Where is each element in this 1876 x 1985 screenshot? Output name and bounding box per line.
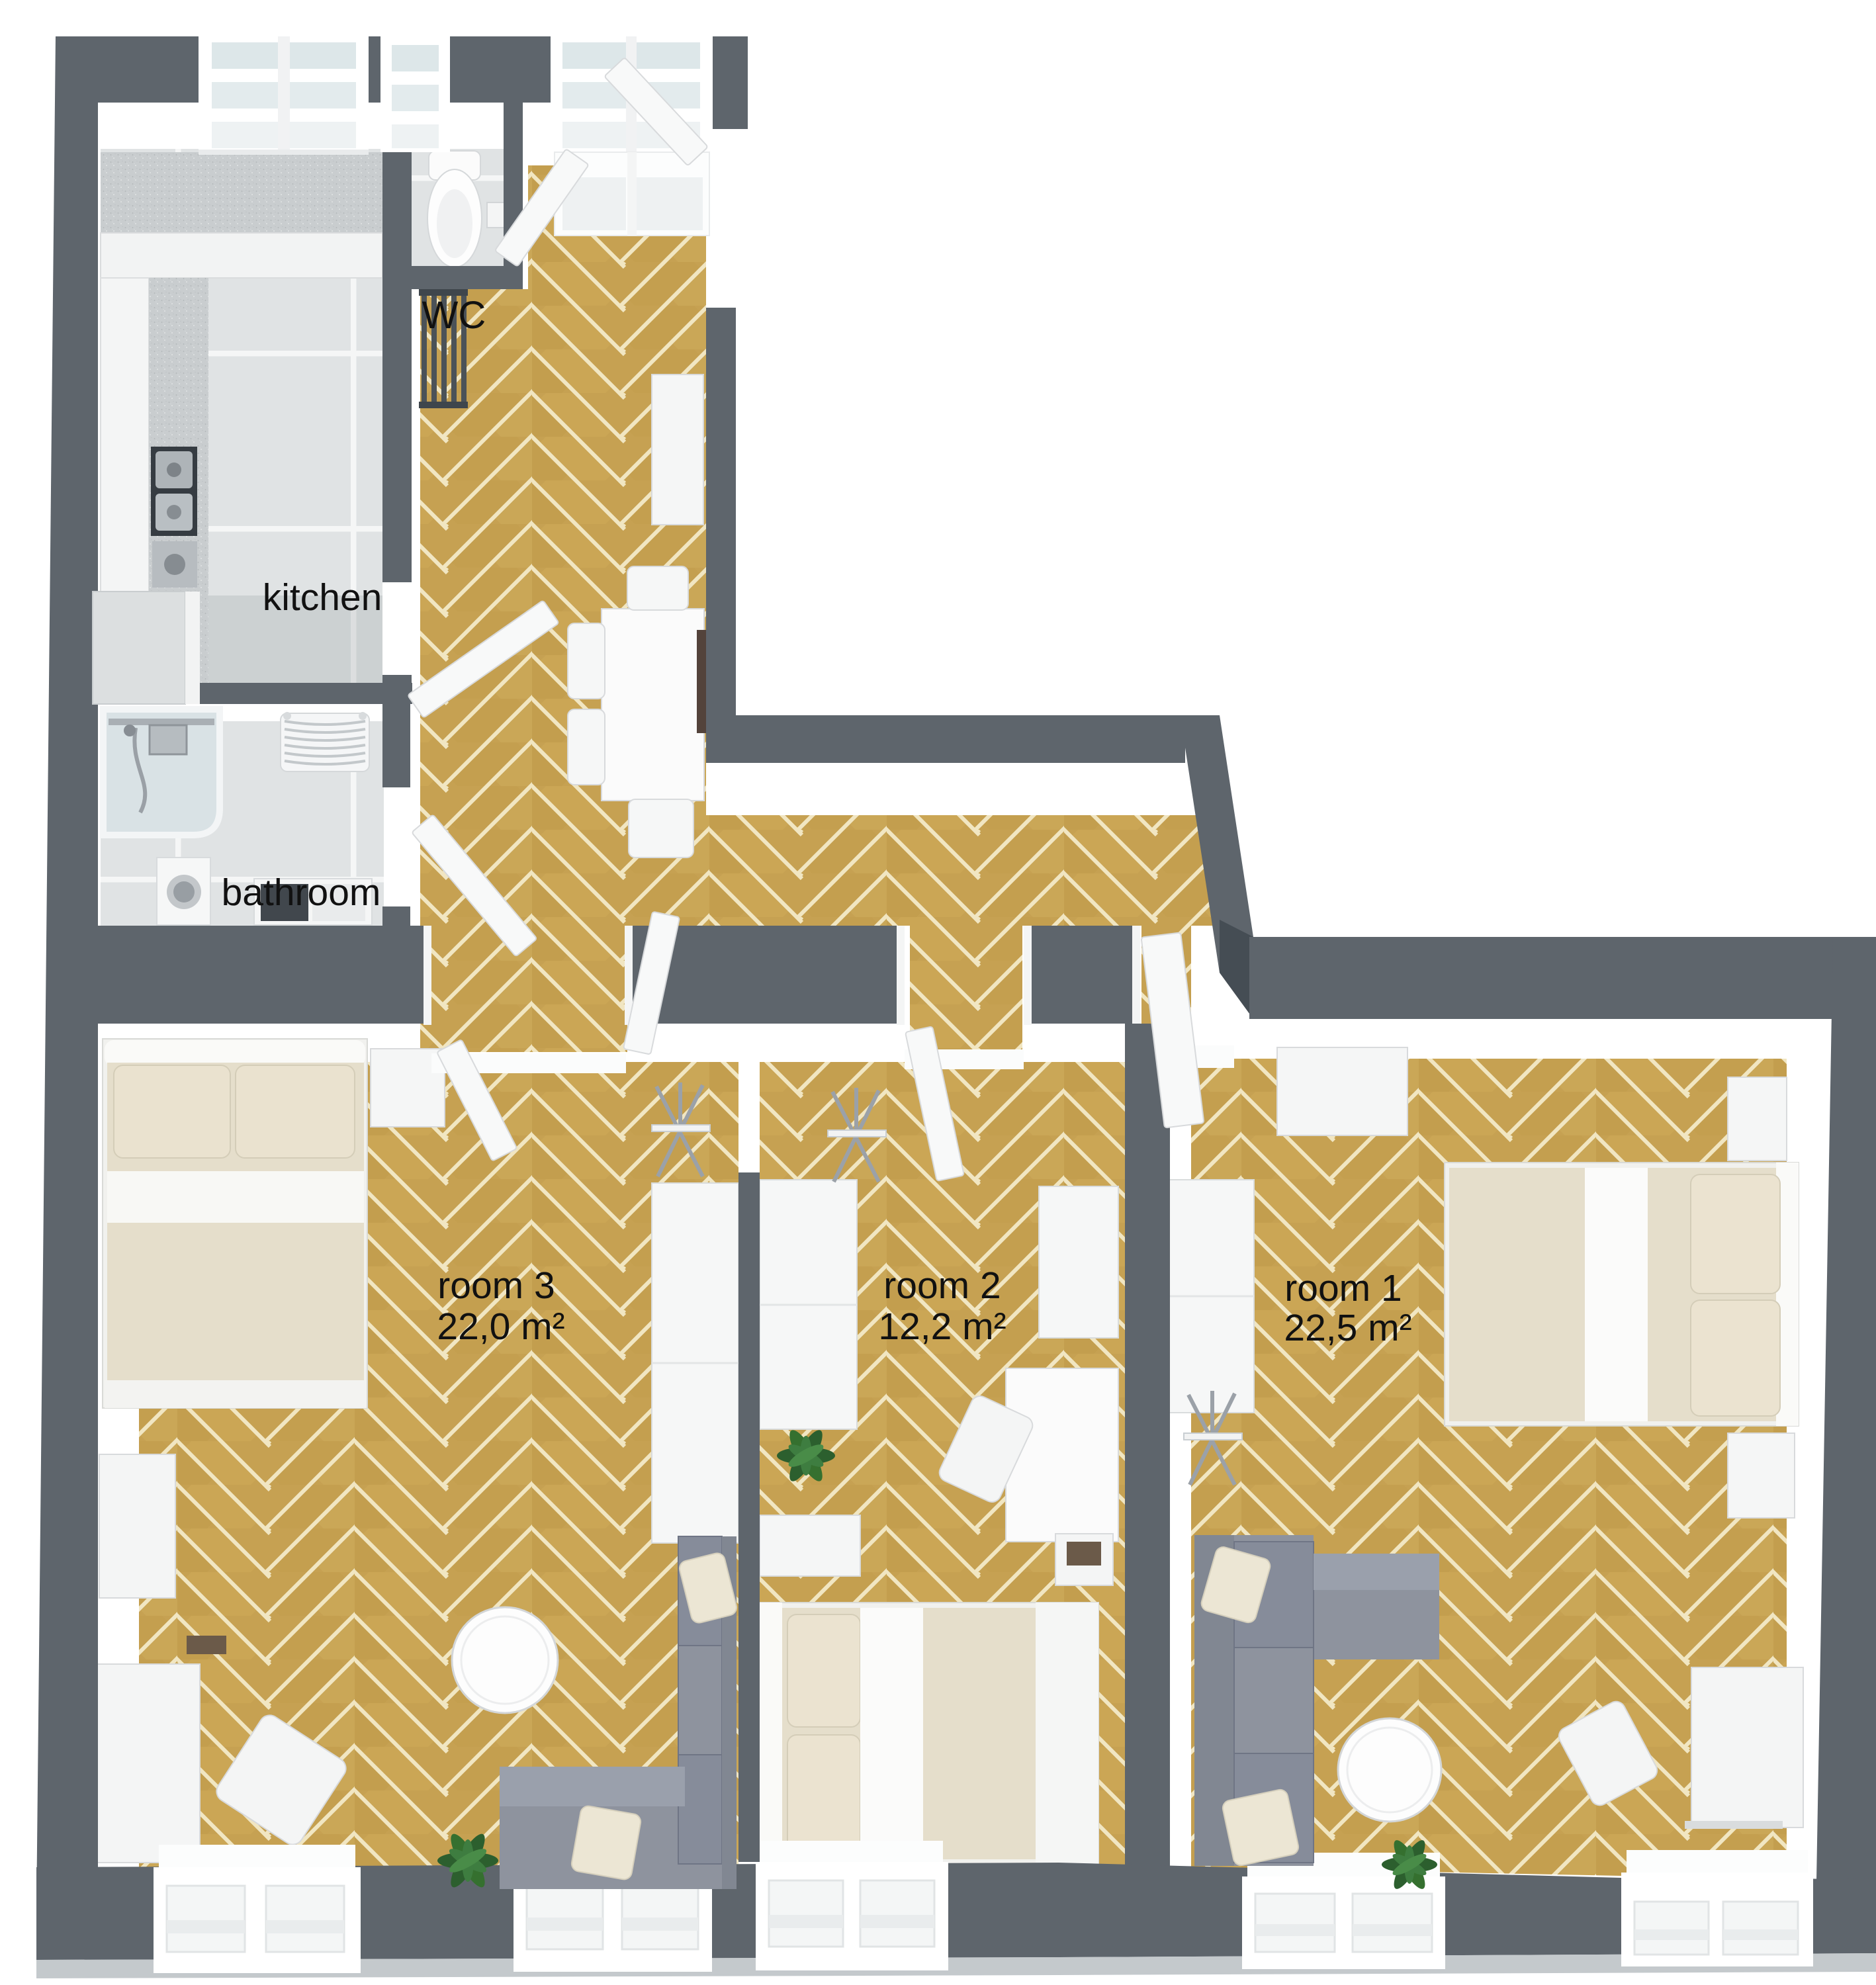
svg-text:WC: WC xyxy=(422,294,486,337)
svg-text:room 1: room 1 xyxy=(1284,1267,1402,1309)
svg-text:kitchen: kitchen xyxy=(263,576,382,619)
svg-text:room 2: room 2 xyxy=(883,1264,1001,1307)
svg-text:room 3: room 3 xyxy=(437,1264,555,1307)
svg-text:bathroom: bathroom xyxy=(222,871,381,914)
svg-text:22,5 m²: 22,5 m² xyxy=(1284,1307,1411,1349)
svg-text:22,0 m²: 22,0 m² xyxy=(437,1305,564,1348)
svg-text:12,2 m²: 12,2 m² xyxy=(878,1305,1006,1348)
